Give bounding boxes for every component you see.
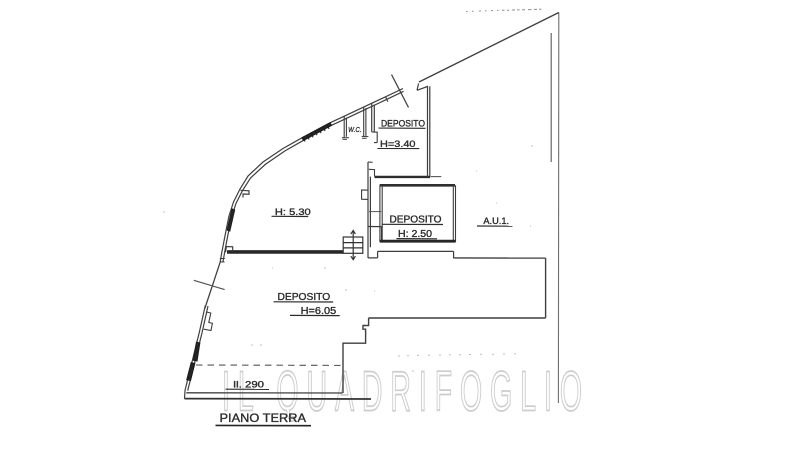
- svg-text:A.U.1.: A.U.1.: [483, 215, 509, 226]
- svg-text:W.C.: W.C.: [348, 125, 362, 134]
- svg-text:Il. 290: Il. 290: [233, 380, 264, 390]
- svg-text:PIANO TERRA: PIANO TERRA: [220, 411, 307, 425]
- svg-text:DEPOSITO: DEPOSITO: [390, 214, 442, 225]
